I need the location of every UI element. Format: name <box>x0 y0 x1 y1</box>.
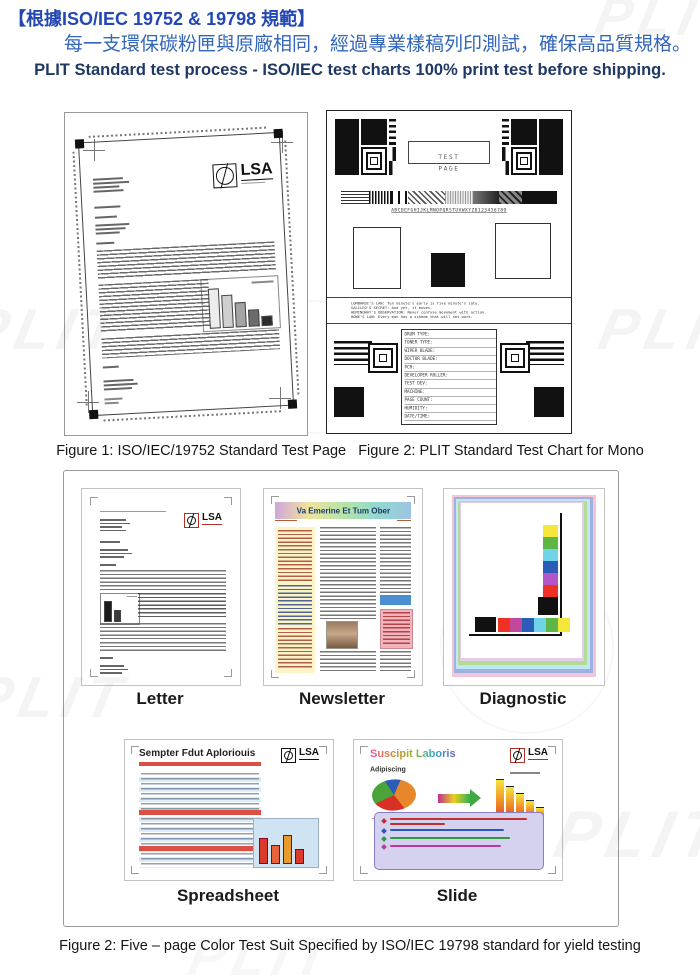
chart-bar <box>261 316 273 327</box>
recipient-line <box>95 223 129 227</box>
color-test-suite-box: LSA Letter <box>63 470 619 927</box>
sender-line <box>100 530 126 532</box>
bullet-box <box>374 812 544 870</box>
divider <box>327 323 571 324</box>
logo-rule <box>241 178 273 181</box>
bullet-marker <box>381 844 387 850</box>
barcode-strip <box>341 191 557 204</box>
newsletter-col2-text <box>320 527 376 619</box>
chart-bar <box>248 309 260 327</box>
pink-table-text <box>383 612 410 646</box>
checker-block <box>502 147 509 175</box>
bullet-row <box>382 845 536 849</box>
body-paragraph <box>100 623 226 639</box>
lsa-logo-text: LSA <box>202 513 222 523</box>
skewed-test-frame: LSA <box>78 132 294 416</box>
concentric-target <box>511 147 537 175</box>
heading-zh-line1: 【根據ISO/IEC 19752 & 19798 規範】 <box>8 5 315 31</box>
barcode-segment <box>341 191 369 204</box>
closing-line <box>103 366 119 369</box>
quote-line: HOWE'S LAW: Every man has a scheme that … <box>351 315 551 320</box>
bullet-row <box>382 829 536 833</box>
crop-mark <box>360 866 368 874</box>
swatch-green <box>546 618 558 632</box>
checker-block <box>504 389 528 413</box>
swatch-red <box>498 618 510 632</box>
form-field: DEVELOPER ROLLER: <box>405 372 498 380</box>
date-line <box>94 205 120 208</box>
barcode-segment <box>522 191 557 204</box>
logo-rule <box>202 524 222 525</box>
recipient-line <box>100 549 128 551</box>
crop-mark <box>407 670 415 678</box>
bullet-marker <box>381 818 387 824</box>
vertical-bar <box>539 119 563 175</box>
barcode-segment <box>369 191 391 204</box>
rainbow-arrow-shaft <box>438 794 470 803</box>
recipient-line <box>100 556 124 558</box>
crop-mark <box>319 866 327 874</box>
chart-bar <box>235 302 247 328</box>
crop-mark <box>131 746 139 754</box>
barcode-segment <box>473 191 499 204</box>
signature-line <box>100 669 128 671</box>
pie-chart <box>370 777 419 813</box>
lsa-logo: LSA <box>212 161 273 188</box>
form-field: MACHINE: <box>405 388 498 396</box>
lsa-logo-text: LSA <box>528 748 548 758</box>
body-paragraph <box>98 279 210 333</box>
registration-square <box>274 129 283 138</box>
table-red-row <box>139 810 261 815</box>
logo-tagline-line <box>241 182 265 185</box>
form-field: WIPER BLADE: <box>405 347 498 355</box>
recipient-line <box>96 231 120 234</box>
barcode-segment <box>499 191 523 204</box>
swatch-magenta <box>543 573 558 585</box>
photo <box>326 621 358 649</box>
pattern-cluster <box>502 119 563 175</box>
lsa-globe-icon <box>184 513 199 528</box>
figure1-iso19752-test-page: LSA <box>64 112 308 436</box>
chart-bar <box>259 838 268 864</box>
chart-legend-line <box>127 596 137 597</box>
bullet-text-line <box>390 845 501 847</box>
spreadsheet-table <box>139 772 261 868</box>
frame-periwinkle <box>454 497 593 673</box>
body-paragraph-bold <box>138 593 226 619</box>
letter-bar-chart <box>200 275 281 332</box>
registration-square <box>89 410 98 419</box>
newsletter-col3-text <box>380 527 411 593</box>
bullet-marker <box>381 828 387 834</box>
logo-rule <box>299 759 319 760</box>
logo-rule <box>528 759 548 760</box>
figures-caption: Figure 1: ISO/IEC/19752 Standard Test Pa… <box>0 443 700 459</box>
test-page-label: TEST PAGE <box>427 151 471 174</box>
closing-line <box>100 657 113 659</box>
crop-mark <box>224 497 232 505</box>
red-banner <box>139 762 261 766</box>
checker-block <box>389 147 396 175</box>
sender-line <box>93 177 123 181</box>
chart-bar <box>283 835 292 864</box>
newsletter-col3-text <box>380 651 411 671</box>
crop-mark <box>90 669 98 677</box>
pattern-cluster <box>334 341 398 417</box>
body-paragraph <box>100 642 226 653</box>
vertical-bar <box>335 119 359 175</box>
form-field: PCR: <box>405 364 498 372</box>
thumb-spreadsheet: Sempter Fdut Aploriouis LSA <box>124 739 334 881</box>
bullet-text-line <box>390 837 510 839</box>
thumb-label-spreadsheet: Spreadsheet <box>124 886 332 906</box>
chart-bar <box>271 845 280 864</box>
bullet-text-line <box>390 829 504 831</box>
chart-bar <box>295 849 304 864</box>
swatch-red <box>543 585 558 597</box>
barcode-segment <box>391 191 408 204</box>
signature-line <box>103 379 133 383</box>
stripe-block <box>334 341 372 365</box>
newsletter-banner: Va Emerine Et Tum Ober <box>275 502 411 519</box>
black-block <box>534 387 564 417</box>
black-block <box>511 119 537 145</box>
thumb-label-slide: Slide <box>353 886 561 906</box>
bullet-text-line <box>390 818 527 820</box>
horizontal-swatch-row <box>475 617 570 632</box>
pie-label: Adipiscing <box>370 766 406 774</box>
concentric-target <box>368 343 398 373</box>
body-paragraph <box>101 329 280 358</box>
quotes-block: LOMBARDI'S LAW: Ten minute's early is fi… <box>351 301 551 319</box>
bullet-text-line <box>390 823 445 825</box>
thumb-label-letter: Letter <box>81 689 239 709</box>
footer-line <box>105 402 119 405</box>
thumb-slide: Suscipit Laboris LSA Adipiscing <box>353 739 563 881</box>
crop-mark <box>548 746 556 754</box>
page: PLIT PLIT PLIT PLIT PLIT PLIT 【根據ISO/IEC… <box>0 0 700 980</box>
slide-title: Suscipit Laboris <box>370 748 456 760</box>
sender-line <box>100 519 126 521</box>
salutation-line <box>100 564 116 566</box>
newsletter-col1 <box>275 527 315 673</box>
bullet-row <box>382 837 536 841</box>
thumb-diagnostic <box>443 488 605 686</box>
sender-line <box>93 181 129 185</box>
crop-mark <box>90 497 98 505</box>
vertical-swatch-column <box>543 525 558 615</box>
lsa-logo: LSA <box>281 748 319 763</box>
divider <box>327 297 571 298</box>
newsletter-title: Va Emerine Et Tum Ober <box>296 506 389 515</box>
letter-bar-chart <box>100 593 140 625</box>
salutation-line <box>96 242 114 245</box>
signature-line <box>100 665 124 667</box>
issue-line <box>397 520 411 521</box>
heading-en: PLIT Standard test process - ISO/IEC tes… <box>0 61 700 80</box>
swatch-yellow <box>543 525 558 537</box>
swatch-blue <box>543 561 558 573</box>
solid-black-square <box>431 253 465 287</box>
sender-line <box>93 185 119 188</box>
form-field: DATE/TIME: <box>405 413 498 421</box>
bullet-marker <box>381 836 387 842</box>
body-paragraph <box>100 570 226 590</box>
form-field: DOCTOR BLADE: <box>405 356 498 364</box>
black-block <box>361 119 387 145</box>
lsa-globe-icon <box>510 748 525 763</box>
col1-text <box>278 628 312 668</box>
signature-line <box>104 387 132 390</box>
frame-green <box>458 501 587 665</box>
stripe-block <box>389 119 396 145</box>
sender-line <box>100 526 122 528</box>
edge-microtext <box>104 410 284 421</box>
bullet-row <box>382 818 536 825</box>
body-paragraph <box>97 241 276 280</box>
alphabet-line: ABCDEFGHIJKLMNOPQRSTUVWXYZ0123456789 <box>349 208 549 213</box>
lsa-logo: LSA <box>510 748 548 763</box>
form-field: HUMIDITY: <box>405 405 498 413</box>
recipient-line <box>95 216 117 219</box>
form-field: TEST DEV: <box>405 380 498 388</box>
sender-line <box>94 189 124 193</box>
suite-caption: Figure 2: Five – page Color Test Suit Sp… <box>0 938 700 954</box>
stripe-block <box>526 341 564 365</box>
edge-microtext <box>89 126 269 137</box>
col1-text <box>278 530 312 582</box>
registration-square <box>75 139 84 148</box>
swatch-cyan <box>543 549 558 561</box>
pattern-cluster <box>335 119 396 175</box>
outline-rectangle <box>353 227 401 289</box>
col1-text <box>278 585 312 625</box>
stripe-block <box>502 119 509 145</box>
table-red-row <box>139 846 261 851</box>
pattern-cluster <box>500 341 564 417</box>
crop-mark <box>360 746 368 754</box>
frame-lavender <box>460 502 584 661</box>
swatch-green <box>543 537 558 549</box>
thumb-newsletter: Va Emerine Et Tum Ober <box>263 488 423 686</box>
swatch-cyan <box>534 618 546 632</box>
plit-watermark: PLIT <box>593 296 700 363</box>
recipient-line <box>100 553 132 555</box>
recipient-line <box>96 227 126 231</box>
crop-mark <box>224 669 232 677</box>
swatch-magenta <box>510 618 522 632</box>
blue-callout-box <box>380 595 411 605</box>
rule-line <box>100 511 166 512</box>
outline-square <box>495 223 551 279</box>
thumb-label-newsletter: Newsletter <box>263 689 421 709</box>
form-field: TONER TYPE: <box>405 339 498 347</box>
issue-line <box>275 520 297 521</box>
swatch-black <box>538 597 558 615</box>
stair-chart-title-line <box>510 772 540 774</box>
edge-microtext <box>72 152 87 408</box>
lsa-logo: LSA <box>184 513 222 528</box>
heading-zh-line2: 每一支環保碳粉匣與原廠相同，經過專業樣稿列印測試，確保高品質規格。 <box>64 29 691 56</box>
frame-cyan <box>456 499 590 669</box>
chart-bar <box>114 610 121 622</box>
lsa-globe-icon <box>212 163 237 188</box>
table-text-texture <box>141 773 259 867</box>
checker-block <box>370 389 394 413</box>
swatch-yellow <box>558 618 570 632</box>
swatch-blue <box>522 618 534 632</box>
concentric-target <box>361 147 387 175</box>
crop-mark <box>319 746 327 754</box>
barcode-segment <box>445 191 473 204</box>
signature-line <box>104 383 138 387</box>
thumb-label-diagnostic: Diagnostic <box>443 689 603 709</box>
concentric-target <box>500 343 530 373</box>
barcode-segment <box>408 191 445 204</box>
sender-line <box>100 523 130 525</box>
chart-legend-line <box>251 280 273 283</box>
form-field: DRUM TYPE: <box>405 331 498 339</box>
rainbow-arrow-head <box>470 789 481 807</box>
chart-bar <box>221 295 234 329</box>
swatch-black <box>475 617 496 632</box>
test-page-box: TEST PAGE <box>408 141 490 164</box>
thumb-letter: LSA <box>81 488 241 686</box>
lsa-logo-text: LSA <box>240 161 273 179</box>
signature-line <box>100 672 122 674</box>
pink-table-box <box>380 609 413 649</box>
lsa-globe-icon <box>281 748 296 763</box>
date-line <box>100 541 120 543</box>
registration-square <box>288 399 297 408</box>
footer-line <box>104 397 122 400</box>
newsletter-col2-text <box>320 651 376 671</box>
black-block <box>334 387 364 417</box>
3d-bar-chart <box>253 818 319 868</box>
figure2-mono-test-chart: TEST PAGE ABCDEFGHIJKLMNOPQRSTUVWXYZ0123… <box>326 110 572 434</box>
chart-bar <box>104 601 112 622</box>
spreadsheet-title: Sempter Fdut Aploriouis <box>139 748 255 759</box>
lsa-logo-text: LSA <box>299 748 319 758</box>
test-info-form: DRUM TYPE: TONER TYPE: WIPER BLADE: DOCT… <box>401 329 497 425</box>
edge-microtext <box>284 141 299 397</box>
crop-mark <box>131 866 139 874</box>
form-field: PAGE COUNT: <box>405 397 498 405</box>
crop-mark <box>548 866 556 874</box>
frame-pink <box>452 495 596 677</box>
